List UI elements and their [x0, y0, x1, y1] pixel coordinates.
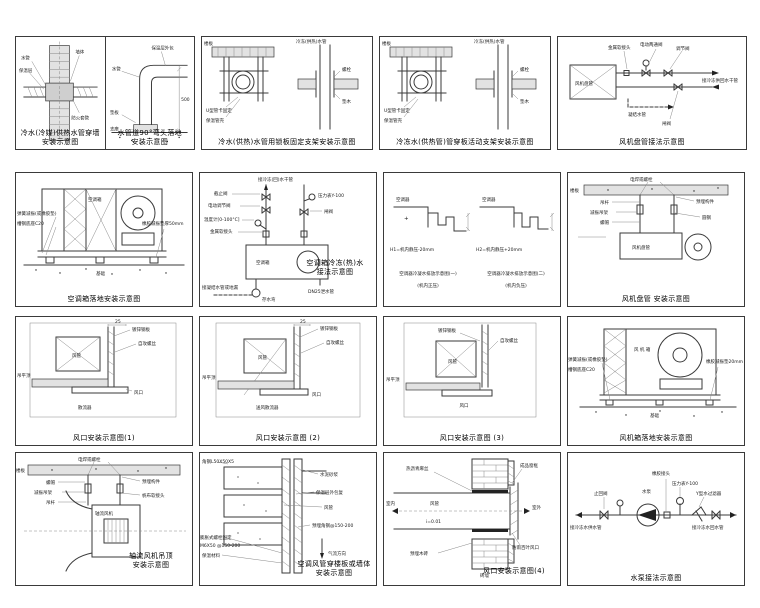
caption: 空调风管穿楼板或墙体 安装示意图: [294, 560, 374, 577]
label-outlet: 风口: [312, 392, 321, 398]
air-outlet-4-drawing: 风管 i=0.01 室内 室外 热沥青麻丝 成品窗框 防雨百叶风口 预埋木砖 砖…: [384, 453, 560, 585]
label-dim-500: 500: [181, 97, 190, 103]
label-plus: +: [404, 216, 409, 222]
label-foundation: 基础: [96, 270, 105, 277]
label-outdoor: 室外: [532, 504, 541, 511]
sub-caption-1a: 空调器冷凝水排放示意图(一): [399, 270, 457, 277]
label-joint: 橡胶接头: [652, 470, 670, 477]
label-rubber: 橡胶减振垫厚50mm: [142, 220, 184, 227]
sub-caption-1b: (机内正压): [417, 282, 439, 289]
label-screw: 自攻螺丝: [326, 339, 344, 346]
label-embed: 预埋构件: [696, 198, 714, 205]
sub-caption-2a: 空调器冷凝水排放示意图(二): [487, 270, 545, 277]
label-channel: 槽钢底座C20: [568, 366, 595, 373]
panel-ahu-water-connection: 接冷冻(回)水干管 空调箱 截止阀 电动调节阀: [199, 172, 377, 307]
panel-air-outlet-2: 风管 25 镀锌钢板 自攻螺丝 吊平顶 风口 送风散流器 风口安装示意图 (2): [199, 316, 377, 446]
label-insulation: 保温层: [19, 67, 33, 74]
fixed-support-drawing: 楼板 U型管卡固定 保温管壳 冷冻(供热)水管 螺栓 垫木: [202, 37, 372, 135]
label-foundation: 基础: [650, 412, 659, 419]
label-duct: 风管: [448, 358, 457, 365]
panel-pipe-through-wall: 水管 保温层 墙体 防火套管 冷水(冷媒)供热水管穿墙 安装示意图: [16, 37, 106, 149]
panel-pipe-sliding-support: 楼板 U型管卡固定 保温管壳 冷冻(供热)水管 螺栓 垫木 冷冻水(供热管)管穿…: [379, 36, 551, 150]
label-weld: 电焊或螺栓: [630, 176, 653, 183]
label-wood: 预埋木砖: [410, 550, 428, 557]
panel-air-outlet-4: 风管 i=0.01 室内 室外 热沥青麻丝 成品窗框 防雨百叶风口 预埋木砖 砖…: [383, 452, 561, 586]
sub-caption-2b: (机内负压): [505, 282, 527, 289]
ahu-floor-drawing: 空调箱 弹簧减振(或橡胶垫) 槽钢底座C20 橡胶减振垫厚50mm 基础: [16, 173, 192, 306]
panel-ahu-floor-mount: 空调箱 弹簧减振(或橡胶垫) 槽钢底座C20 橡胶减振垫厚50mm 基础 空调箱…: [15, 172, 193, 307]
label-louver: 防雨百叶风口: [512, 544, 539, 551]
label-airflow: 气流方向: [328, 550, 346, 557]
label-sheet: 镀锌钢板: [132, 326, 150, 333]
caption: 空调箱冷冻(热)水 接法示意图: [296, 259, 374, 276]
pump-piping-drawing: 止回阀 水泵 橡胶接头 压力表Y-100 Y型水过滤器 接冷冻水供水管 接冷冻水…: [568, 453, 744, 585]
label-joint: 金属软接头: [608, 44, 631, 51]
label-dim: 25: [115, 319, 121, 325]
panel-pump-piping: 止回阀 水泵 橡胶接头 压力表Y-100 Y型水过滤器 接冷冻水供水管 接冷冻水…: [567, 452, 745, 586]
label-dim: 25: [300, 319, 306, 325]
label-stop: 截止阀: [214, 190, 228, 197]
label-slab: 楼板: [16, 467, 25, 474]
label-wall: 墙体: [75, 48, 84, 55]
label-duct: 风管: [324, 504, 333, 511]
label-rod: 吊杆: [600, 199, 609, 206]
label-main: 接冷冻(回)水干管: [258, 176, 294, 183]
label-material: 保温材料: [202, 552, 220, 559]
label-unit: 空调箱: [88, 196, 102, 203]
caption: 风口安装示意图 (2): [202, 434, 374, 443]
caption: 冷水(冷媒)供热水管穿墙 安装示意图: [18, 129, 103, 146]
label-bolt2: M6X50 @150-200: [200, 543, 240, 549]
label-slab: 楼板: [382, 40, 391, 47]
label-nut: 螺帽: [46, 479, 55, 486]
label-outlet: 风口: [460, 403, 469, 409]
label-unit: 风机盘管: [575, 80, 593, 87]
caption: 空调箱落地安装示意图: [18, 295, 190, 304]
label-rubber: 橡胶减振垫20mm: [706, 358, 743, 365]
panel-air-outlet-3: 风管 镀锌钢板 自攻螺丝 吊平顶 风口 风口安装示意图 (3): [383, 316, 561, 446]
caption: 风口安装示意图 (3): [386, 434, 558, 443]
label-slab: 楼板: [204, 40, 213, 47]
label-wood: 垫木: [520, 98, 529, 105]
label-trap: 存水弯: [262, 296, 276, 303]
label-h2: H2=机内静压+20mm: [476, 246, 522, 253]
label-mortar: 水泥砂浆: [320, 471, 338, 478]
label-diffuser: 散流器: [78, 404, 92, 411]
label-clamp: U型管卡固定: [206, 107, 232, 114]
label-thermo: 温度计[0-100°C]: [204, 216, 240, 223]
label-embed: 预埋构件: [142, 478, 160, 485]
label-duct: 风管: [430, 500, 439, 507]
caption: 冷冻水(供热管)管穿板活动支架安装示意图: [382, 138, 548, 147]
panel-duct-through-wall: 角钢L50X50X5 水泥砂浆 保温层外包复 风管 预埋角钢@150-200 膨…: [199, 452, 377, 586]
label-regulate: 调节阀: [676, 45, 690, 52]
caption: 水泵接法示意图: [570, 574, 742, 583]
label-screw: 自攻螺丝: [138, 340, 156, 347]
label-filter: Y型水过滤器: [695, 490, 722, 497]
label-tar: 热沥青麻丝: [406, 465, 429, 472]
condensate-drain-drawing: 空调器 + H1=机内静压-20mm 空调器冷凝水排放示意图(一) (机内正压)…: [384, 173, 560, 306]
label-hanger: 减振吊架: [590, 209, 608, 216]
panel-fanbox-floor: 风 机 箱 弹簧减振(或橡胶垫) 槽钢底座C20 橡胶减振垫20mm 基础 风机…: [567, 316, 745, 446]
panel-air-outlet-1: 风管 25 镀锌钢板 自攻螺丝 吊平顶 风口 散流器 风口安装示意图(1): [15, 316, 193, 446]
label-shell: 保温管壳: [384, 117, 402, 124]
label-bolt: 螺栓: [520, 66, 529, 73]
label-joint: 金属软接头: [210, 228, 233, 235]
fancoil-piping-drawing: 风机盘管 金属软接头 电动两通阀 调节阀 接冷冻供回水干管 凝结水管 闸阀: [558, 37, 746, 135]
label-duct: 风管: [258, 354, 267, 361]
label-weld: 电焊或螺栓: [78, 456, 101, 463]
label-pipe: 冷冻(供热)水管: [474, 38, 505, 45]
label-gauge: 压力表Y-100: [318, 192, 344, 199]
sliding-support-drawing: 楼板 U型管卡固定 保温管壳 冷冻(供热)水管 螺栓 垫木: [380, 37, 550, 135]
ahu-water-drawing: 接冷冻(回)水干管 空调箱 截止阀 电动调节阀: [200, 173, 376, 306]
label-unit: 风机盘管: [632, 244, 650, 251]
label-screw: 自攻螺丝: [500, 337, 518, 344]
label-left-main: 接冷冻水供水管: [570, 524, 602, 531]
label-spring: 弹簧减振(或橡胶垫): [17, 210, 57, 217]
label-motor: 电动调节阀: [208, 202, 231, 209]
label-canvas: 帆布软接头: [142, 492, 165, 499]
label-diffuser: 送风散流器: [256, 404, 279, 411]
label-duct: 风管: [72, 352, 81, 359]
label-sheet: 镀锌钢板: [320, 325, 338, 332]
label-outlet: 风口: [134, 390, 143, 396]
label-ceiling: 吊平顶: [17, 373, 31, 379]
label-angle: 角钢L50X50X5: [202, 458, 234, 465]
label-sleeve: 防火套管: [71, 115, 89, 122]
label-channel: 槽钢底座C20: [17, 220, 44, 227]
label-nut: 螺帽: [600, 219, 609, 226]
label-main: 接冷冻供回水干管: [702, 77, 738, 84]
label-slope: i=0.01: [426, 519, 441, 525]
caption: 风机盘管接法示意图: [560, 138, 744, 147]
label-h1: H1=机内静压-20mm: [390, 246, 434, 253]
panel-condensate-drain: 空调器 + H1=机内静压-20mm 空调器冷凝水排放示意图(一) (机内正压)…: [383, 172, 561, 307]
label-steel: 圆钢: [702, 214, 711, 221]
label-unit: 空调箱: [256, 259, 270, 266]
label-spring: 弹簧减振(或橡胶垫): [568, 356, 608, 363]
label-valve: 电动两通阀: [640, 41, 663, 48]
caption: 风机盘管 安装示意图: [570, 295, 742, 304]
fancoil-hanging-drawing: 电焊或螺栓 楼板 吊杆 减振吊架 螺帽 预埋构件 圆钢 风机盘管: [568, 173, 744, 306]
label-insulation: 保温层外包: [151, 44, 174, 51]
row-2: 空调箱 弹簧减振(或橡胶垫) 槽钢底座C20 橡胶减振垫厚50mm 基础 空调箱…: [15, 172, 745, 307]
air-outlet-3-drawing: 风管 镀锌钢板 自攻螺丝 吊平顶 风口: [384, 317, 560, 445]
panel-fancoil-hanging: 电焊或螺栓 楼板 吊杆 减振吊架 螺帽 预埋构件 圆钢 风机盘管 风机盘管 安装…: [567, 172, 745, 307]
label-slab: 楼板: [570, 187, 579, 194]
caption: 冷水(供热)水管用锁板固定支架安装示意图: [204, 138, 370, 147]
label-sheet: 镀锌钢板: [438, 327, 456, 334]
label-check: 止回阀: [594, 490, 608, 497]
label-todrain: 接凝结水管或地漏: [202, 284, 238, 291]
label-hanger: 减振吊架: [34, 489, 52, 496]
label-shell: 保温管壳: [206, 117, 224, 124]
label-unit: 轴流风机: [95, 510, 113, 517]
caption: 风口安装示意图(1): [18, 434, 190, 443]
label-gauge: 压力表Y-100: [672, 480, 698, 487]
label-wood: 垫木: [342, 98, 351, 105]
label-embed: 预埋角钢@150-200: [312, 522, 353, 529]
panel-elbow-floor: 保温层外包 水管 垫板 支座 500 水管道90°弯头落地 安装示意图: [106, 37, 195, 149]
label-ceiling: 吊平顶: [202, 375, 216, 381]
caption: 风口安装示意图(4): [474, 567, 554, 576]
label-pipe: 水管: [111, 65, 120, 72]
label-right-main: 接冷冻水回水管: [692, 524, 724, 531]
label-indoor: 室内: [386, 500, 395, 507]
panel-fancoil-piping: 风机盘管 金属软接头 电动两通阀 调节阀 接冷冻供回水干管 凝结水管 闸阀 风机: [557, 36, 747, 150]
air-outlet-1-drawing: 风管 25 镀锌钢板 自攻螺丝 吊平顶 风口 散流器: [16, 317, 192, 445]
row-3: 风管 25 镀锌钢板 自攻螺丝 吊平顶 风口 散流器 风口安装示意图(1): [15, 316, 745, 446]
row-1: 水管 保温层 墙体 防火套管 冷水(冷媒)供热水管穿墙 安装示意图: [15, 36, 747, 150]
panel-pipe-fixed-support: 楼板 U型管卡固定 保温管壳 冷冻(供热)水管 螺栓 垫木 冷水(供热)水管用锁…: [201, 36, 373, 150]
cad-detail-sheet: 水管 保温层 墙体 防火套管 冷水(冷媒)供热水管穿墙 安装示意图: [0, 0, 760, 608]
label-frame: 成品窗框: [520, 462, 538, 469]
fanbox-floor-drawing: 风 机 箱 弹簧减振(或橡胶垫) 槽钢底座C20 橡胶减振垫20mm 基础: [568, 317, 744, 445]
label-unit1: 空调器: [396, 196, 410, 203]
label-gate: 闸阀: [662, 120, 671, 127]
label-pipe: 水管: [21, 54, 30, 61]
label-bolt: 螺栓: [342, 66, 351, 73]
label-clamp: U型管卡固定: [384, 107, 410, 114]
label-unit2: 空调器: [482, 196, 496, 203]
caption: 水管道90°弯头落地 安装示意图: [108, 129, 193, 146]
row-4: 电焊或螺栓 楼板 螺帽 减振吊架 吊杆 预埋构件 帆布软接头 轴流风机: [15, 452, 745, 586]
label-drainpipe: DN25泄水管: [308, 288, 335, 295]
caption: 轴流风机吊顶 安装示意图: [114, 552, 188, 569]
label-pad: 垫板: [109, 109, 118, 116]
label-rod: 吊杆: [46, 499, 55, 506]
label-pump: 水泵: [642, 488, 651, 495]
label-unit: 风 机 箱: [634, 346, 651, 353]
label-bolt: 膨胀式螺栓固定: [200, 534, 232, 541]
panel-axial-fan-hanging: 电焊或螺栓 楼板 螺帽 减振吊架 吊杆 预埋构件 帆布软接头 轴流风机: [15, 452, 193, 586]
caption: 风机箱落地安装示意图: [570, 434, 742, 443]
label-wrap: 保温层外包复: [316, 489, 343, 496]
label-pipe: 冷冻(供热)水管: [296, 38, 327, 45]
air-outlet-2-drawing: 风管 25 镀锌钢板 自攻螺丝 吊平顶 风口 送风散流器: [200, 317, 376, 445]
label-drain: 凝结水管: [628, 111, 646, 118]
label-ceiling: 吊平顶: [386, 377, 400, 383]
label-gate: 闸阀: [324, 208, 333, 215]
panel-pipe-wall-and-elbow: 水管 保温层 墙体 防火套管 冷水(冷媒)供热水管穿墙 安装示意图: [15, 36, 195, 150]
